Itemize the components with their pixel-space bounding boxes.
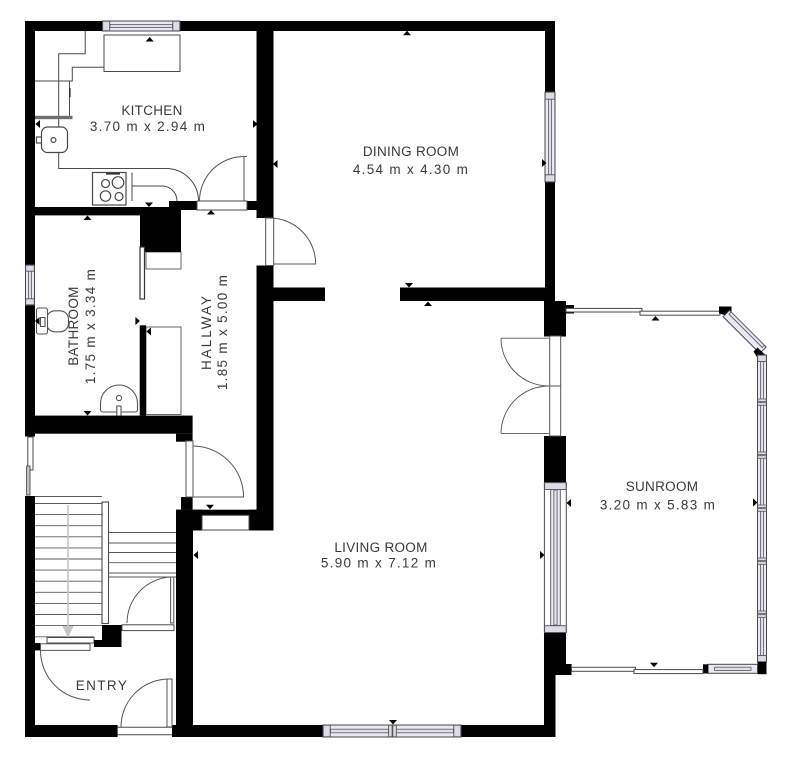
svg-text:5.90 m x 7.12 m: 5.90 m x 7.12 m [321,556,437,571]
svg-text:DINING ROOM: DINING ROOM [363,144,459,159]
svg-text:3.20 m x 5.83 m: 3.20 m x 5.83 m [600,498,716,513]
svg-text:BATHROOM: BATHROOM [66,286,81,365]
svg-text:3.70 m x 2.94 m: 3.70 m x 2.94 m [90,119,206,134]
svg-text:1.75 m x 3.34 m: 1.75 m x 3.34 m [83,268,98,384]
svg-text:KITCHEN: KITCHEN [121,103,182,118]
svg-text:ENTRY: ENTRY [76,678,129,693]
svg-text:HALLWAY: HALLWAY [199,294,214,370]
svg-text:1.85 m x 5.00 m: 1.85 m x 5.00 m [215,274,230,390]
svg-text:4.54 m x 4.30 m: 4.54 m x 4.30 m [353,162,469,177]
svg-text:LIVING ROOM: LIVING ROOM [334,540,427,555]
svg-text:SUNROOM: SUNROOM [626,479,699,494]
